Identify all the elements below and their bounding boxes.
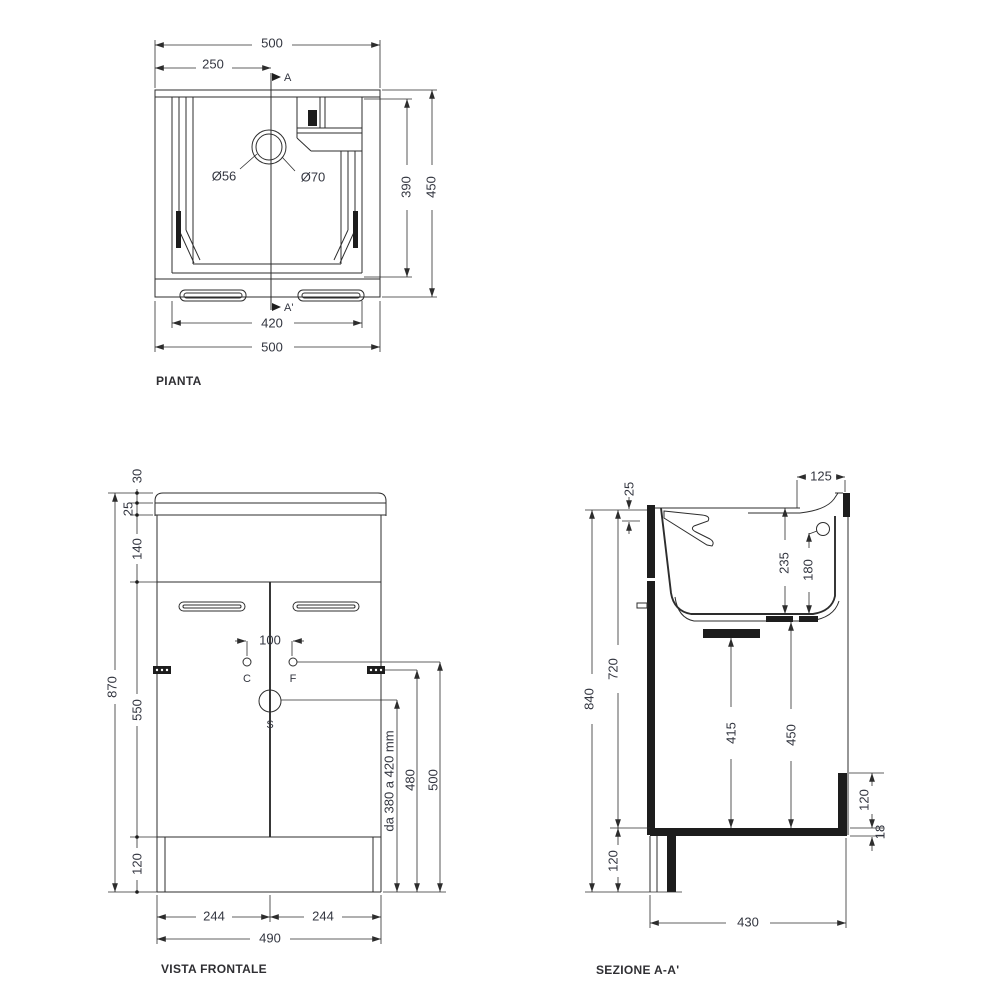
plan-right-handle — [298, 290, 364, 301]
dim-plan-overall-width-bottom: 500 — [261, 340, 283, 355]
front-tap-c-label: C — [243, 673, 251, 685]
dim-plan-overall-width-top: 500 — [261, 36, 283, 51]
plan-drain-inner-circle — [256, 134, 282, 160]
section-support-tab — [637, 603, 647, 608]
front-tap-f-label: F — [290, 673, 297, 685]
dim-front-drain-height-range: da 380 a 420 mm — [382, 730, 397, 831]
dim-front-cabinet-width: 490 — [259, 931, 281, 946]
section-view-label: SEZIONE A-A' — [596, 963, 679, 977]
front-top-band — [155, 493, 386, 516]
section-plinth-panel — [667, 836, 676, 892]
front-tap-f — [289, 658, 297, 666]
dim-plan-basin-width: 420 — [261, 316, 283, 331]
dim-front-apron-height: 140 — [130, 538, 145, 560]
front-left-handle — [179, 602, 245, 611]
plan-door-handles — [180, 290, 364, 301]
dim-plan-center-offset: 250 — [202, 57, 224, 72]
dim-front-tap-height: 500 — [426, 769, 441, 791]
plan-view: A A' — [155, 72, 380, 314]
front-tap-c — [243, 658, 251, 666]
dim-plan-basin-depth: 390 — [399, 176, 414, 198]
section-tap-hole — [817, 523, 830, 536]
technical-drawing-page: A A' 500 250 Ø56 Ø70 390 — [0, 0, 1000, 1000]
dim-section-interior-height: 720 — [606, 658, 621, 680]
dim-plan-drain-outer: Ø70 — [301, 170, 326, 185]
dim-plan-drain-inner: Ø56 — [212, 169, 237, 184]
front-right-hinge — [367, 666, 385, 674]
dim-section-base-depth: 430 — [737, 915, 759, 930]
front-dimensions: 100 30 25 140 550 120 870 da 380 a 420 m… — [105, 469, 447, 976]
dim-section-top-thickness: 25 — [622, 482, 637, 496]
section-rim-curve — [800, 493, 838, 513]
dim-front-tap-spacing: 100 — [259, 633, 281, 648]
dim-section-tap-height: 180 — [801, 559, 816, 581]
plan-view-label: PIANTA — [156, 374, 202, 388]
section-bottom-panel — [650, 828, 847, 836]
section-drain-fitting — [766, 616, 793, 622]
section-back-panel — [647, 505, 655, 835]
dim-front-door-height: 550 — [130, 699, 145, 721]
dim-front-top-thickness: 25 — [121, 502, 136, 516]
front-view: C F S — [153, 493, 386, 892]
plan-right-grip — [353, 211, 358, 248]
dim-front-plinth-height: 120 — [130, 853, 145, 875]
front-view-label: VISTA FRONTALE — [161, 962, 267, 976]
section-shelf — [703, 629, 760, 638]
section-washboard — [664, 511, 713, 546]
dim-front-side-height: 480 — [403, 769, 418, 791]
dim-section-basin-clearance: 450 — [784, 724, 799, 746]
plan-left-grip — [176, 211, 181, 248]
front-right-handle — [293, 602, 359, 611]
dim-section-tap-offset: 125 — [810, 469, 832, 484]
plan-tap-hole — [308, 110, 317, 126]
dim-section-basin-depth: 235 — [777, 552, 792, 574]
plan-section-cut-line: A A' — [271, 72, 293, 314]
plan-basin-walls — [172, 97, 362, 273]
plan-washboard-block — [297, 97, 362, 151]
dim-section-overall-height: 840 — [582, 688, 597, 710]
section-view — [585, 493, 850, 892]
front-drain-label: S — [266, 719, 273, 731]
plan-dimensions: 500 250 Ø56 Ø70 390 450 420 500 PIANTA — [155, 36, 439, 389]
dim-front-overall-height: 870 — [105, 676, 120, 698]
section-arrow-bottom — [272, 303, 281, 311]
dim-front-door-width-left: 244 — [203, 909, 225, 924]
dim-front-rim-height: 30 — [130, 469, 145, 483]
section-front-apron — [843, 493, 850, 517]
dim-plan-overall-depth: 450 — [424, 176, 439, 198]
plan-drain-outer-circle — [252, 130, 286, 164]
plan-left-handle — [180, 290, 246, 301]
section-arrow-top — [272, 73, 281, 81]
dim-section-rail-height: 120 — [857, 789, 872, 811]
section-front-rail — [838, 773, 847, 828]
dim-section-shelf-clearance: 415 — [724, 722, 739, 744]
drawing-canvas: A A' 500 250 Ø56 Ø70 390 — [0, 0, 1000, 1000]
section-dimensions: 840 720 120 25 125 235 180 415 — [582, 469, 888, 978]
dim-section-plinth-height: 120 — [606, 850, 621, 872]
front-left-hinge — [153, 666, 171, 674]
plan-countertop-outline — [155, 90, 380, 297]
dim-front-door-width-right: 244 — [312, 909, 334, 924]
plan-marker-a: A — [284, 72, 292, 84]
plan-marker-a1: A' — [284, 302, 293, 314]
dim-section-panel-thickness: 18 — [873, 825, 888, 839]
